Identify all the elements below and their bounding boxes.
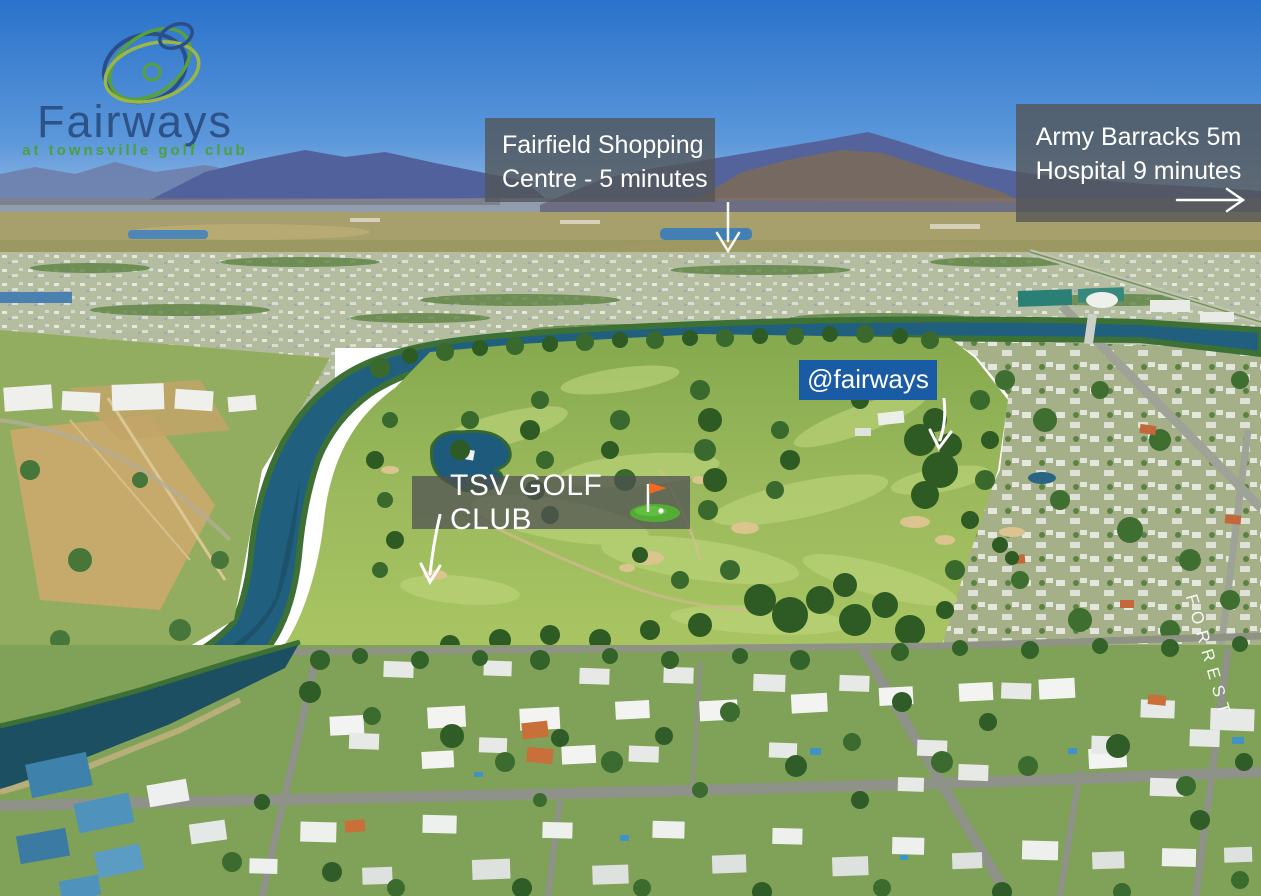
fairfield-line1: Fairfield Shopping	[502, 128, 715, 162]
down-arrow-icon	[712, 202, 744, 254]
right-arrow-icon	[1175, 186, 1247, 214]
army-line1: Army Barracks 5m	[1016, 120, 1261, 154]
down-arrow-icon	[922, 398, 962, 454]
logo-subtitle: at townsville golf club	[10, 142, 260, 159]
aerial-photo: Fairways at townsville golf club Fairfie…	[0, 0, 1261, 896]
down-arrow-icon	[418, 514, 452, 590]
fairways-logo-icon	[90, 16, 210, 108]
golf-flag-icon	[626, 478, 684, 524]
fairfield-line2: Centre - 5 minutes	[502, 162, 715, 196]
golf-club-label: TSV GOLF CLUB	[412, 476, 690, 529]
fairways-social-label: @fairways	[799, 360, 937, 400]
army-line2: Hospital 9 minutes	[1016, 154, 1261, 188]
logo-title: Fairways	[10, 96, 260, 148]
army-hospital-label: Army Barracks 5m Hospital 9 minutes	[1016, 104, 1261, 222]
fairfield-shopping-label: Fairfield Shopping Centre - 5 minutes	[485, 118, 715, 202]
